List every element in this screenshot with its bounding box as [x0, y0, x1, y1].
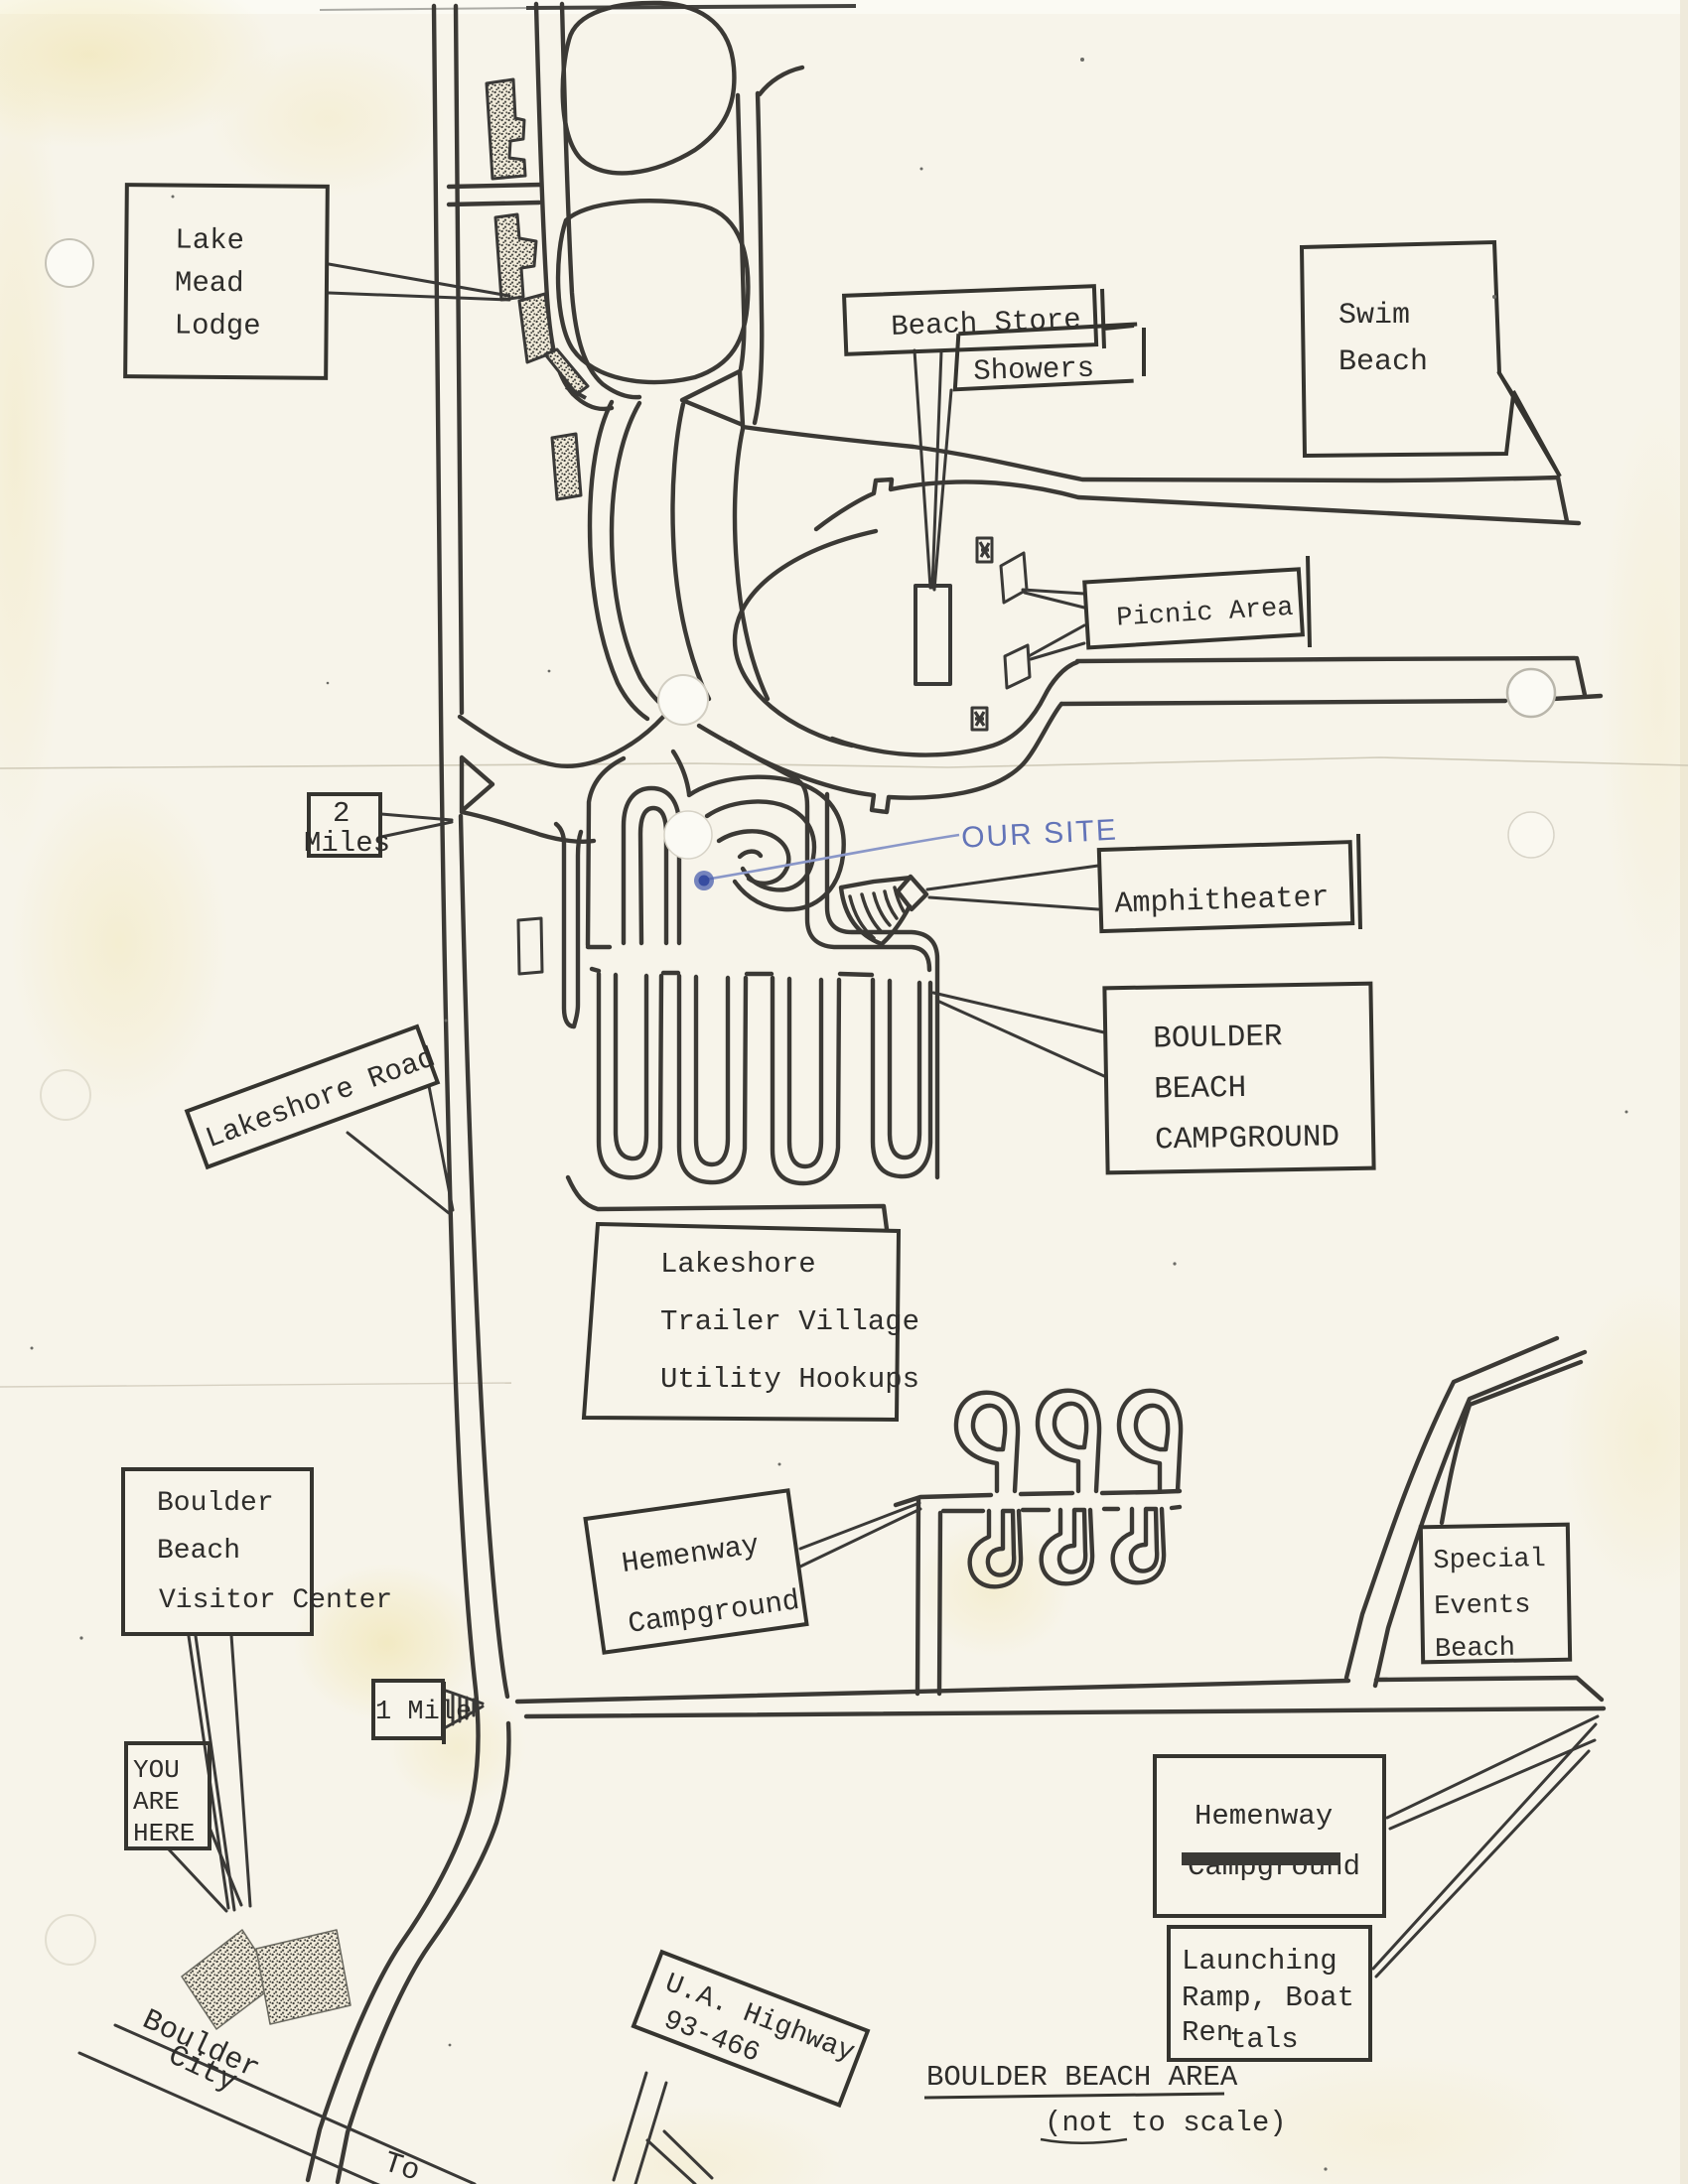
svg-text:BOULDER: BOULDER [1153, 1020, 1283, 1056]
svg-text:Special: Special [1433, 1545, 1546, 1576]
svg-text:Launching: Launching [1182, 1945, 1337, 1978]
svg-text:Mead: Mead [175, 267, 244, 301]
svg-text:HERE: HERE [133, 1819, 195, 1848]
svg-text:Utility Hookups: Utility Hookups [660, 1363, 919, 1396]
svg-text:Beach: Beach [1338, 345, 1428, 379]
svg-text:Beach: Beach [1435, 1634, 1516, 1665]
svg-text:Beach: Beach [157, 1536, 240, 1567]
svg-text:Visitor Center: Visitor Center [159, 1585, 392, 1616]
svg-text:BOULDER BEACH AREA: BOULDER BEACH AREA [926, 2061, 1238, 2094]
svg-text:Lodge: Lodge [174, 310, 260, 343]
svg-text:Showers: Showers [973, 352, 1095, 388]
svg-text:CAMPGROUND: CAMPGROUND [1155, 1120, 1340, 1158]
svg-text:YOU: YOU [133, 1755, 180, 1785]
svg-text:2: 2 [333, 797, 350, 830]
svg-text:Miles: Miles [304, 827, 390, 860]
svg-text:(not to scale): (not to scale) [1045, 2107, 1287, 2139]
svg-text:Amphitheater: Amphitheater [1114, 882, 1330, 922]
svg-text:BEACH: BEACH [1154, 1071, 1247, 1108]
svg-text:Boulder: Boulder [157, 1488, 274, 1519]
svg-text:Lake: Lake [175, 224, 244, 258]
svg-text:ARE: ARE [133, 1787, 180, 1817]
svg-text:Lakeshore: Lakeshore [660, 1248, 816, 1281]
svg-text:1 Mile: 1 Mile [375, 1698, 472, 1727]
svg-text:Ren: Ren [1182, 2016, 1233, 2049]
svg-text:Hemenway: Hemenway [1195, 1800, 1333, 1833]
svg-text:Events: Events [1434, 1590, 1531, 1622]
svg-text:Trailer Village: Trailer Village [660, 1305, 919, 1338]
svg-text:tals: tals [1229, 2023, 1299, 2056]
svg-text:Swim: Swim [1338, 299, 1410, 333]
svg-text:Ramp, Boat: Ramp, Boat [1182, 1981, 1354, 2014]
